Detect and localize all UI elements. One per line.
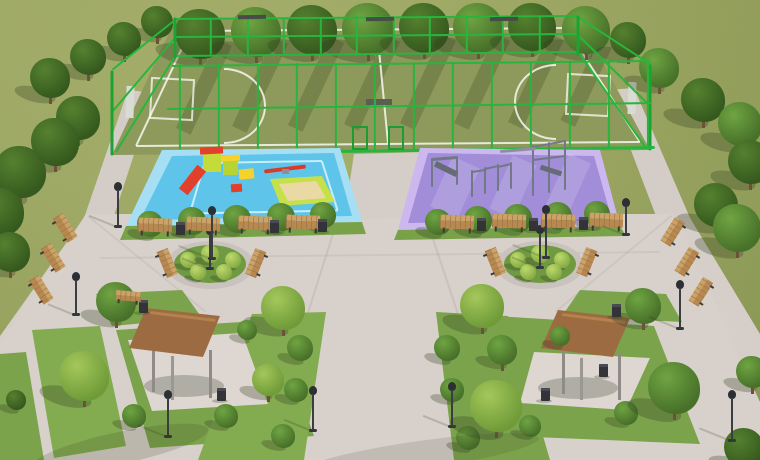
tree [30,58,70,98]
seesaw-pivot [282,169,289,174]
canopy [252,364,284,396]
bench-leg [685,271,690,275]
floodlight [238,15,266,19]
bin-rim [529,218,538,221]
street-lamp [113,182,123,228]
tree [736,356,760,388]
bar-post [497,164,499,191]
canopy [434,335,460,361]
fence-post [283,18,285,54]
canopy [70,39,106,75]
play-tower-roof [221,155,240,162]
canopy [261,286,305,330]
shadow [607,315,623,319]
park-3d-render: Aerial 3D architectural render of a park… [0,0,760,460]
fence-post [247,18,249,55]
canopy [59,351,109,401]
street-lamp [207,206,217,260]
tree [487,335,517,365]
bench-leg [263,254,268,257]
lamp-pole [312,394,314,430]
tree [648,362,700,414]
bench [138,217,173,236]
fence-post [491,62,493,149]
bench-leg [443,227,445,232]
bench-leg [521,227,523,232]
fence-post [218,64,220,151]
canopy [713,204,760,252]
bin-rim [612,304,621,307]
bench-leg [699,301,704,305]
canopy [639,48,679,88]
gazebo-post [580,358,583,400]
bench-leg [189,229,191,234]
shadow [265,231,281,235]
bin-rim [541,388,550,391]
fence-post [296,63,298,151]
bench [492,213,527,232]
fence-post [452,62,454,150]
gazebo-shadow [538,377,618,399]
street-lamp [621,198,631,236]
street-lamp [727,390,737,442]
tree [59,351,109,401]
tree [0,188,24,236]
bush [122,404,146,428]
canopy [216,264,232,280]
canopy [30,58,70,98]
play-tower [203,152,221,172]
play-tower [223,159,238,175]
bench-leg [241,228,243,233]
fence-post [539,16,541,52]
fence-post [608,61,610,148]
bench-leg [167,231,169,236]
bush [434,335,460,361]
canopy [122,404,146,428]
trash-bin [541,388,550,401]
lamp-pole [117,190,119,226]
fence-post [393,17,395,53]
fence-gate [352,126,368,150]
trash-bin [217,388,226,401]
trash-bin [176,222,185,235]
play-stairs [239,168,255,180]
street-lamp [308,386,318,432]
tree [639,48,679,88]
shadow [212,399,228,403]
workout-post [532,145,534,196]
bush [214,404,238,428]
bench-leg [696,254,701,258]
trash-bin [612,304,621,317]
fence-post [413,63,415,150]
tree [252,364,284,396]
street-lamp [71,272,81,316]
canopy [487,335,517,365]
trash-bin [579,217,588,230]
bench-leg [710,284,715,288]
bench-leg [256,273,261,276]
bush [546,264,562,280]
play-box [231,184,243,193]
lamp-pole [731,398,733,440]
bush [271,424,295,448]
shadow [134,311,150,315]
shadow [313,230,329,234]
trash-bin [477,218,486,231]
gazebo-post [562,348,565,394]
bin-rim [270,220,279,223]
fence-post [466,17,468,53]
tree [713,204,760,252]
bush [216,264,232,280]
workout-post [564,140,566,190]
shadow [171,233,187,237]
bush [237,320,257,340]
shadow [472,229,488,233]
canopy [648,362,700,414]
bin-rim [599,364,608,367]
gazebo-post [152,344,155,392]
bench [440,214,475,233]
center-bench [366,99,392,105]
play-tower-roof [200,146,223,154]
bush [287,335,313,361]
fence-post [502,16,504,53]
fence-corner-post [111,70,114,155]
fence-post [374,63,376,150]
canopy [237,320,257,340]
canopy [0,232,30,272]
gazebo-shadow [144,375,224,397]
fence-post [530,62,532,149]
lamp-pole [679,288,681,328]
trash-bin [599,364,608,377]
fence-corner-post [649,64,652,150]
bin-rim [176,222,185,225]
shadow [574,228,590,232]
bench-leg [469,228,471,233]
fence-post [210,18,212,55]
street-lamp [541,205,551,259]
gazebo-post [618,354,621,400]
canopy [287,335,313,361]
lamp-pole [545,213,547,257]
fence-post [647,61,649,148]
bench-leg [594,253,599,256]
lamp-pole [625,206,627,234]
street-lamp [675,280,685,330]
bin-rim [217,388,226,391]
fence-post [429,17,431,53]
bar-post [471,170,473,197]
canopy [271,424,295,448]
lamp-pole [211,214,213,258]
gazebo-post [209,350,212,398]
floodlight [490,17,518,21]
bench-leg [117,299,119,303]
trash-bin [529,218,538,231]
canopy [550,326,570,346]
tree [470,380,522,432]
canopy [470,380,522,432]
bench-leg [141,230,143,235]
shadow [536,399,552,403]
fence-corner-post [174,17,177,58]
pullup-frame [431,158,433,187]
tree [0,232,30,272]
shadow [594,375,610,379]
bin-rim [318,219,327,222]
trash-bin [318,219,327,232]
tree [728,140,760,184]
bench-leg [289,227,291,232]
fence-post [320,18,322,54]
bench-leg [671,241,676,245]
shadow [524,229,540,233]
bush [6,390,26,410]
fence-post [257,64,259,151]
fence-corner-post [577,15,580,55]
floodlight [366,17,394,21]
canopy [214,404,238,428]
canopy [284,378,308,402]
tree [70,39,106,75]
canopy [460,284,504,328]
bench-leg [495,226,497,231]
bench-leg [570,227,572,232]
canopy [0,188,24,236]
bench-leg [587,272,592,275]
canopy [6,390,26,410]
goal-area-right [565,73,611,117]
fence-gate [388,126,404,150]
tree [460,284,504,328]
fence-post [179,64,181,151]
bench [114,289,141,304]
bench-leg [135,301,137,305]
fence-post [356,17,358,54]
fence-post [335,63,337,150]
bush [284,378,308,402]
bench-leg [682,224,687,228]
tree [261,286,305,330]
bar-post [510,162,512,189]
bush [550,326,570,346]
trash-bin [270,220,279,233]
bench-leg [592,225,594,230]
canopy [546,264,562,280]
bin-rim [477,218,486,221]
bin-rim [579,217,588,220]
lamp-pole [75,280,77,314]
fence-post [569,62,571,148]
